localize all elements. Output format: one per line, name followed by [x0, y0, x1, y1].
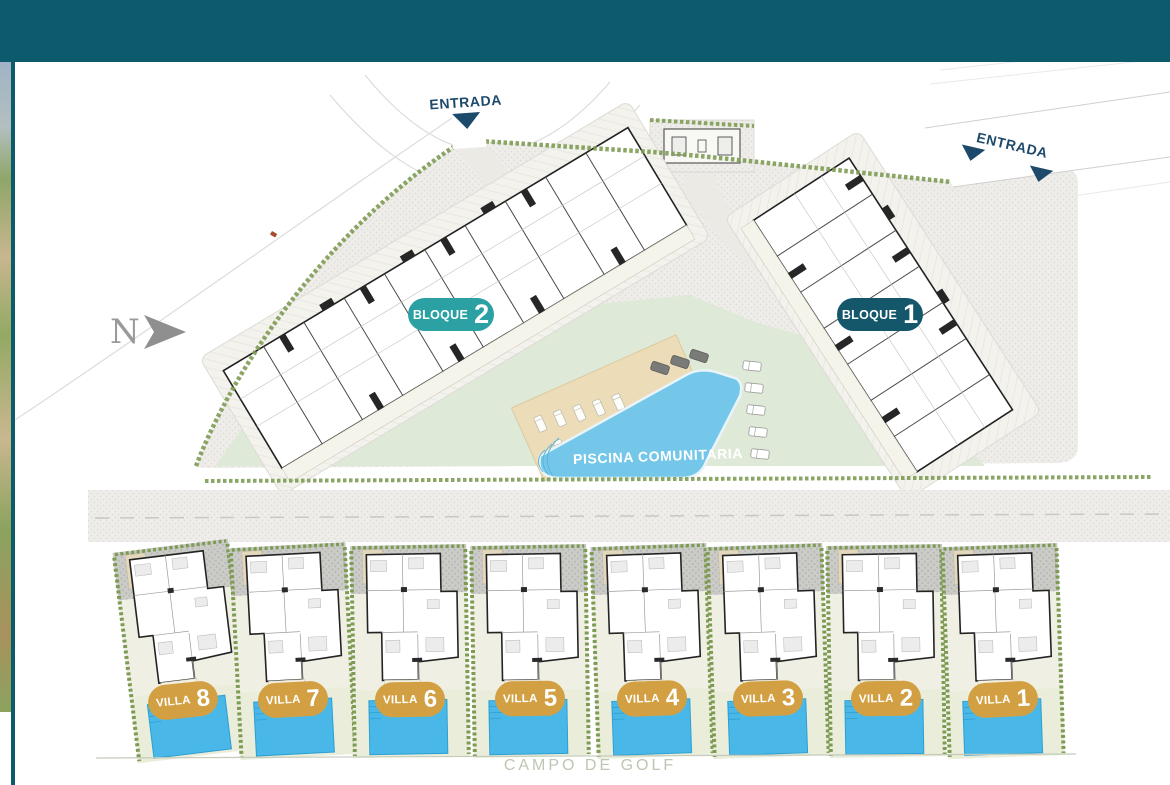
- header-bar: [0, 0, 1170, 62]
- villa-2-label: VILLA: [859, 692, 894, 705]
- villa-7-label: VILLA: [266, 693, 301, 707]
- villa-8-label: VILLA: [155, 694, 191, 710]
- north-arrow-icon: [142, 314, 188, 350]
- villa-4-label: VILLA: [625, 692, 660, 705]
- villa-plot: [470, 544, 590, 758]
- bloque-2-badge[interactable]: BLOQUE 2: [408, 298, 494, 331]
- villa-2-badge[interactable]: VILLA 2: [851, 680, 922, 716]
- villa-5-label: VILLA: [503, 692, 538, 705]
- villa-plot: [230, 542, 357, 760]
- villa-plot: [941, 543, 1064, 759]
- site-plan-graphic: [0, 0, 1170, 785]
- villa-3-badge[interactable]: VILLA 3: [732, 680, 803, 717]
- villa-plot: [706, 543, 829, 759]
- villa-1-label: VILLA: [976, 693, 1011, 707]
- villa-3-number: 3: [781, 686, 795, 710]
- villa-6-label: VILLA: [383, 693, 418, 706]
- entrance-1: ENTRADA: [429, 92, 504, 132]
- bloque-1-label: BLOQUE: [842, 308, 897, 322]
- villa-7-badge[interactable]: VILLA 7: [257, 680, 329, 719]
- villa-6-badge[interactable]: VILLA 6: [375, 681, 446, 717]
- hedge-marker: [270, 231, 277, 237]
- villa-plot: [590, 543, 713, 759]
- villa-1-badge[interactable]: VILLA 1: [967, 680, 1039, 719]
- villa-5-badge[interactable]: VILLA 5: [495, 680, 566, 716]
- villa-7-number: 7: [306, 686, 321, 711]
- north-label: N: [110, 315, 140, 349]
- bloque-1-badge[interactable]: BLOQUE 1: [837, 298, 923, 331]
- bloque-2-label: BLOQUE: [413, 308, 468, 322]
- masterplan-page: N ENTRADA ENTRADA BLOQUE 2 BLOQUE 1 PISC…: [0, 0, 1170, 785]
- villa-plot: [826, 544, 946, 758]
- bloque-1-number: 1: [903, 301, 918, 328]
- villa-1-number: 1: [1016, 686, 1031, 711]
- entrance-1-arrow-icon: [452, 112, 481, 130]
- villa-3-label: VILLA: [741, 692, 776, 705]
- villa-5-number: 5: [543, 686, 557, 710]
- villa-4-number: 4: [665, 686, 679, 710]
- golf-course-label: CAMPO DE GOLF: [430, 757, 750, 775]
- villa-4-badge[interactable]: VILLA 4: [616, 680, 687, 717]
- golf-photo-strip: [0, 62, 15, 785]
- entrance-gap: [451, 129, 486, 149]
- villa-6-number: 6: [423, 687, 437, 711]
- villa-plot: [350, 544, 470, 758]
- bloque-2-number: 2: [474, 301, 489, 328]
- north-indicator: N: [110, 314, 188, 350]
- villa-2-number: 2: [899, 686, 913, 710]
- villa-access-road: [88, 490, 1170, 542]
- villa-plots: [113, 539, 1065, 764]
- villa-8-number: 8: [195, 686, 211, 711]
